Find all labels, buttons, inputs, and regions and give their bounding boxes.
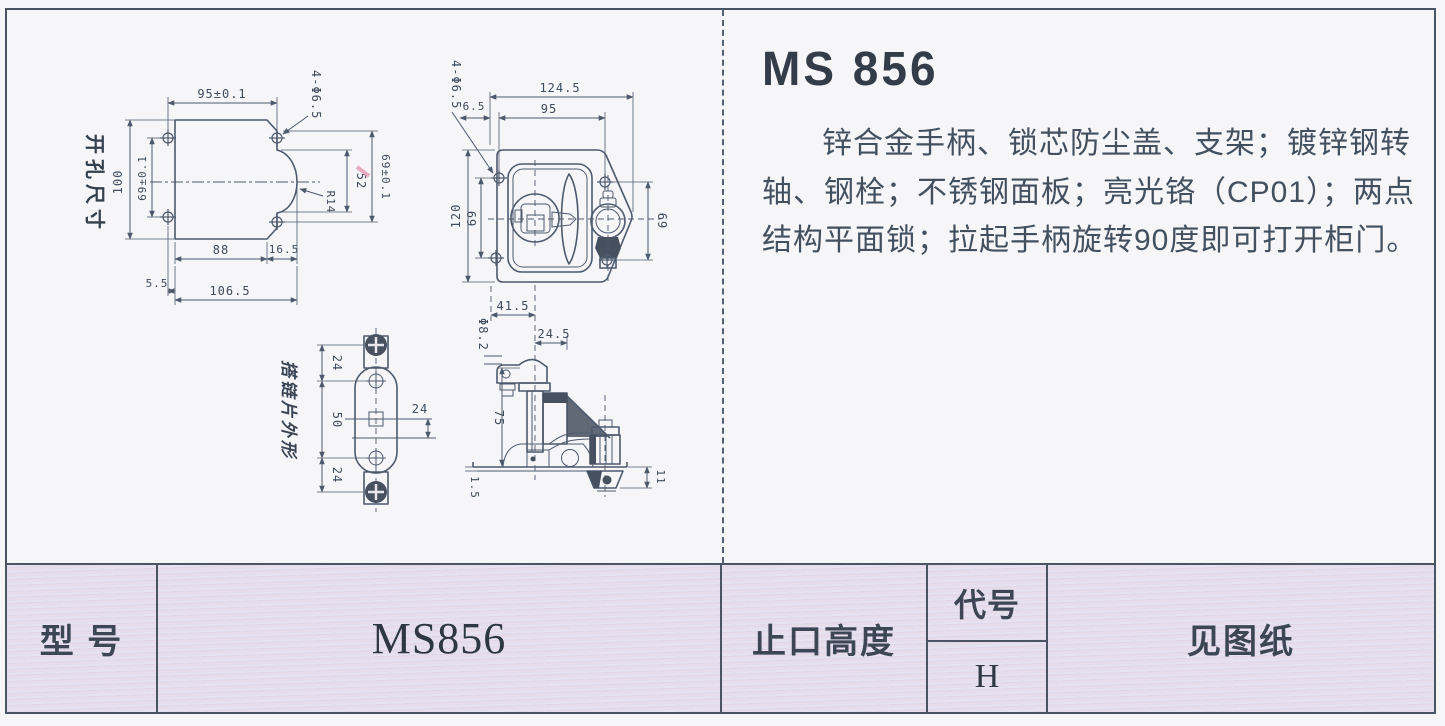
- dim-fv-hole-edge: 6.5: [463, 100, 486, 113]
- dim-cyl-offset: 24.5: [538, 327, 571, 341]
- stop-height-label-cell: 止口高度: [722, 565, 928, 712]
- technical-drawings: 开孔尺寸 95±0.1 4-Φ6.5 100 69±0.1 69±0.1: [5, 8, 722, 563]
- dim-fv-holes-callout: 4-Φ6.5: [449, 60, 463, 109]
- hasp-drawing: 搭链片外形: [279, 328, 436, 512]
- product-description: 锌合金手柄、锁芯防尘盖、支架；镀锌钢转轴、钢栓；不锈钢面板；亮光铬（CP01）；…: [762, 120, 1424, 266]
- dim-handle-offset: 41.5: [497, 299, 530, 313]
- catalog-page: 开孔尺寸 95±0.1 4-Φ6.5 100 69±0.1 69±0.1: [0, 0, 1445, 726]
- model-value-cell: MS856: [158, 565, 722, 712]
- dim-cam-drop: 11: [654, 469, 667, 484]
- model-label-cell: 型 号: [7, 565, 158, 712]
- dim-fv-right-pitch-v: 69: [655, 213, 669, 229]
- dim-hasp-top-pitch: 24: [330, 355, 344, 371]
- code-column: 代号 H: [928, 565, 1048, 712]
- dim-bottom-width: 88: [213, 243, 229, 257]
- cutout-drawing-label: 开孔尺寸: [83, 134, 106, 234]
- dim-height: 100: [111, 170, 125, 195]
- hasp-drawing-label: 搭链片外形: [279, 360, 298, 460]
- dim-hole-pitch-v: 69±0.1: [136, 155, 149, 201]
- dim-total-width: 106.5: [209, 284, 250, 298]
- spec-table: 型 号 MS856 止口高度 代号 H 见图纸: [5, 563, 1436, 714]
- dim-radius: R14: [324, 191, 337, 214]
- dim-panel-thickness: 1.5: [468, 476, 481, 499]
- description-panel: MS 856 锌合金手柄、锁芯防尘盖、支架；镀锌钢转轴、钢栓；不锈钢面板；亮光铬…: [762, 40, 1424, 266]
- dim-fv-total-width: 124.5: [539, 81, 580, 95]
- product-title: MS 856: [762, 40, 1424, 97]
- dim-shaft-dia: Φ8.2: [476, 318, 490, 351]
- dim-bottom-ext: 16.5: [269, 243, 300, 256]
- code-value-cell: H: [928, 642, 1046, 712]
- dim-depth: 75: [492, 410, 506, 426]
- dim-right-pitch-v: 69±0.1: [379, 154, 392, 200]
- dim-hasp-width: 24: [412, 402, 428, 416]
- cutout-drawing: 开孔尺寸 95±0.1 4-Φ6.5 100 69±0.1 69±0.1: [83, 70, 392, 305]
- dim-hasp-mid-pitch: 50: [330, 412, 344, 428]
- side-view-drawing: Φ8.2 75 1.5 11: [465, 285, 667, 499]
- dim-holes-callout: 4-Φ6.5: [309, 70, 323, 119]
- dim-top-width: 95±0.1: [197, 87, 246, 101]
- drawing-note-cell: 见图纸: [1048, 565, 1434, 712]
- dim-fv-hole-pitch-h: 95: [541, 102, 557, 116]
- dim-fv-height: 120: [449, 204, 463, 229]
- dim-hasp-bottom-pitch: 24: [330, 467, 344, 483]
- dim-fv-hole-pitch-v: 69: [465, 210, 479, 226]
- front-view-drawing: 124.5 95 4-Φ6.5 6.5 120 69 69 41.5: [449, 60, 669, 350]
- panel-divider: [722, 10, 724, 563]
- dim-edge-offset: 5.5: [146, 277, 169, 290]
- code-label-cell: 代号: [928, 565, 1046, 642]
